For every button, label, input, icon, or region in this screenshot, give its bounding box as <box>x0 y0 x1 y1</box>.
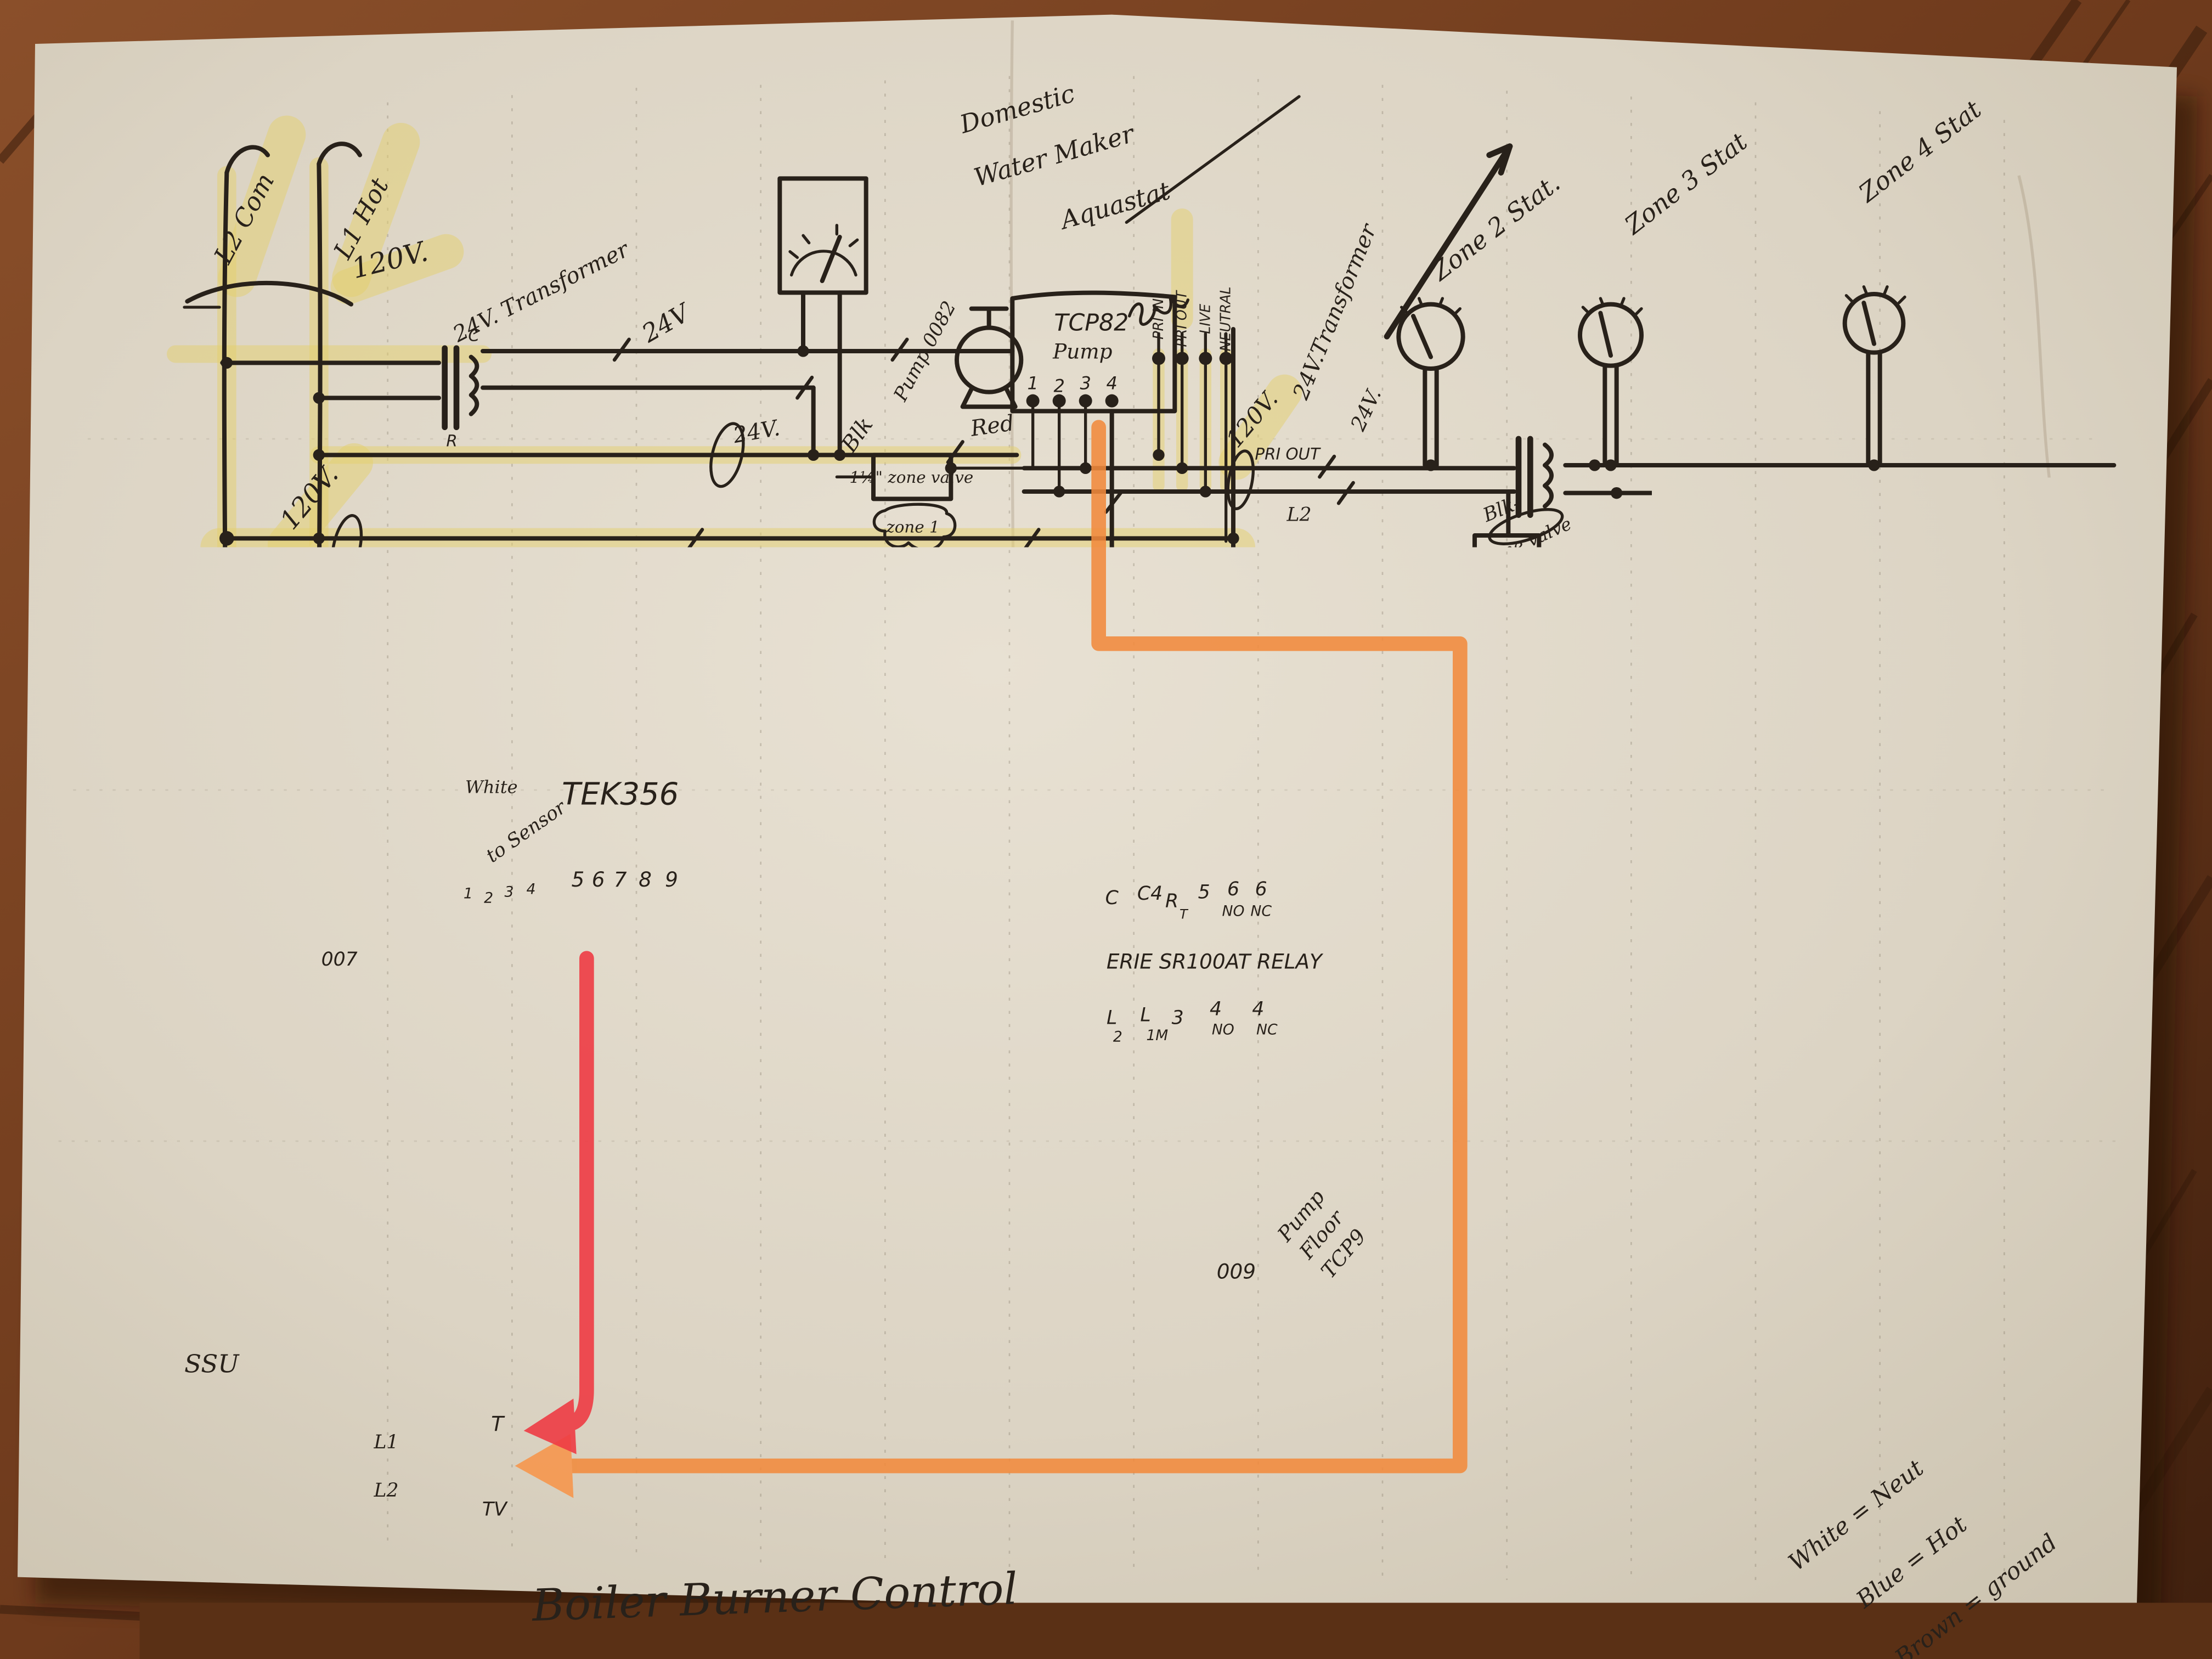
label-zone2: zone 2 <box>1480 591 1533 610</box>
tcp82-term-2: 2 <box>1053 376 1064 397</box>
label-zone3: zone 3 <box>1838 620 1892 639</box>
label-boiler-l2: L2 <box>373 1480 398 1502</box>
label-boiler-l1: L1 <box>373 1431 398 1453</box>
relay-l1-sub: 1M <box>1146 1027 1168 1044</box>
relay-l2: L <box>1107 1007 1117 1029</box>
label-l2-small: L2 <box>1286 504 1311 526</box>
tek-t1: 1 <box>464 885 473 902</box>
relay-6a-sub: NO <box>1222 902 1245 919</box>
label-xfmr-c: C <box>468 326 479 345</box>
relay-3: 3 <box>1172 1007 1184 1029</box>
label-ssu: SSU <box>184 1349 240 1378</box>
label-007: 007 <box>321 949 358 970</box>
relay-4a-sub: NO <box>1212 1021 1234 1038</box>
label-xfmr-r: R <box>446 431 457 450</box>
label-pri-in: PRI IN <box>1150 298 1166 340</box>
label-boiler-t: T <box>491 1412 505 1436</box>
schematic-photo: L2 Com L1 Hot 120V. 24V. Transformer C R… <box>0 0 2212 1659</box>
relay-4a: 4 <box>1210 998 1222 1020</box>
tek-t4: 4 <box>527 881 536 898</box>
tek-t3: 3 <box>505 884 514 901</box>
relay-l1: L <box>1140 1004 1150 1026</box>
relay-c: C <box>1105 887 1119 909</box>
label-zone4: zone 4 <box>1932 579 1985 598</box>
tcp82-term-4: 4 <box>1106 373 1117 393</box>
label-tek356: TEK356 <box>562 777 679 812</box>
tek-t8: 8 <box>639 867 652 891</box>
label-pri-out: PRI OUT <box>1255 444 1321 463</box>
tcp82-term-1: 1 <box>1027 373 1038 393</box>
label-pri-out-strip: PRI OUT <box>1173 290 1190 347</box>
label-live: LIVE <box>1197 304 1213 334</box>
label-relay-title: ERIE SR100AT RELAY <box>1107 949 1324 973</box>
label-zone1: zone 1 <box>885 518 939 537</box>
relay-r: R <box>1165 890 1178 912</box>
label-boiler-tv: TV <box>482 1499 508 1521</box>
relay-4b: 4 <box>1252 998 1264 1020</box>
tek-t6: 6 <box>592 867 605 891</box>
tek-t2: 2 <box>484 889 493 906</box>
paper-sheet <box>0 15 2197 1659</box>
label-valve1: 1¼" zone valve <box>849 468 973 487</box>
relay-l2-sub: 2 <box>1113 1029 1122 1046</box>
relay-4b-sub: NC <box>1256 1021 1278 1038</box>
tcp82-term-3: 3 <box>1080 373 1091 393</box>
relay-c4: C4 <box>1137 883 1163 905</box>
tek-t5: 5 <box>571 867 584 891</box>
relay-r-sub: T <box>1180 907 1189 922</box>
relay-6b: 6 <box>1255 878 1267 900</box>
tek-t9: 9 <box>665 867 678 891</box>
tek-t7: 7 <box>614 867 627 891</box>
label-tcp82: TCP82 <box>1054 309 1128 337</box>
label-white: White <box>465 776 518 797</box>
relay-6a: 6 <box>1227 878 1239 900</box>
label-neutral: NEUTRAL <box>1217 286 1234 351</box>
relay-6b-sub: NC <box>1250 902 1272 919</box>
label-tcp82-pump: Pump <box>1052 339 1113 363</box>
label-009: 009 <box>1217 1260 1256 1284</box>
relay-5: 5 <box>1198 881 1210 903</box>
